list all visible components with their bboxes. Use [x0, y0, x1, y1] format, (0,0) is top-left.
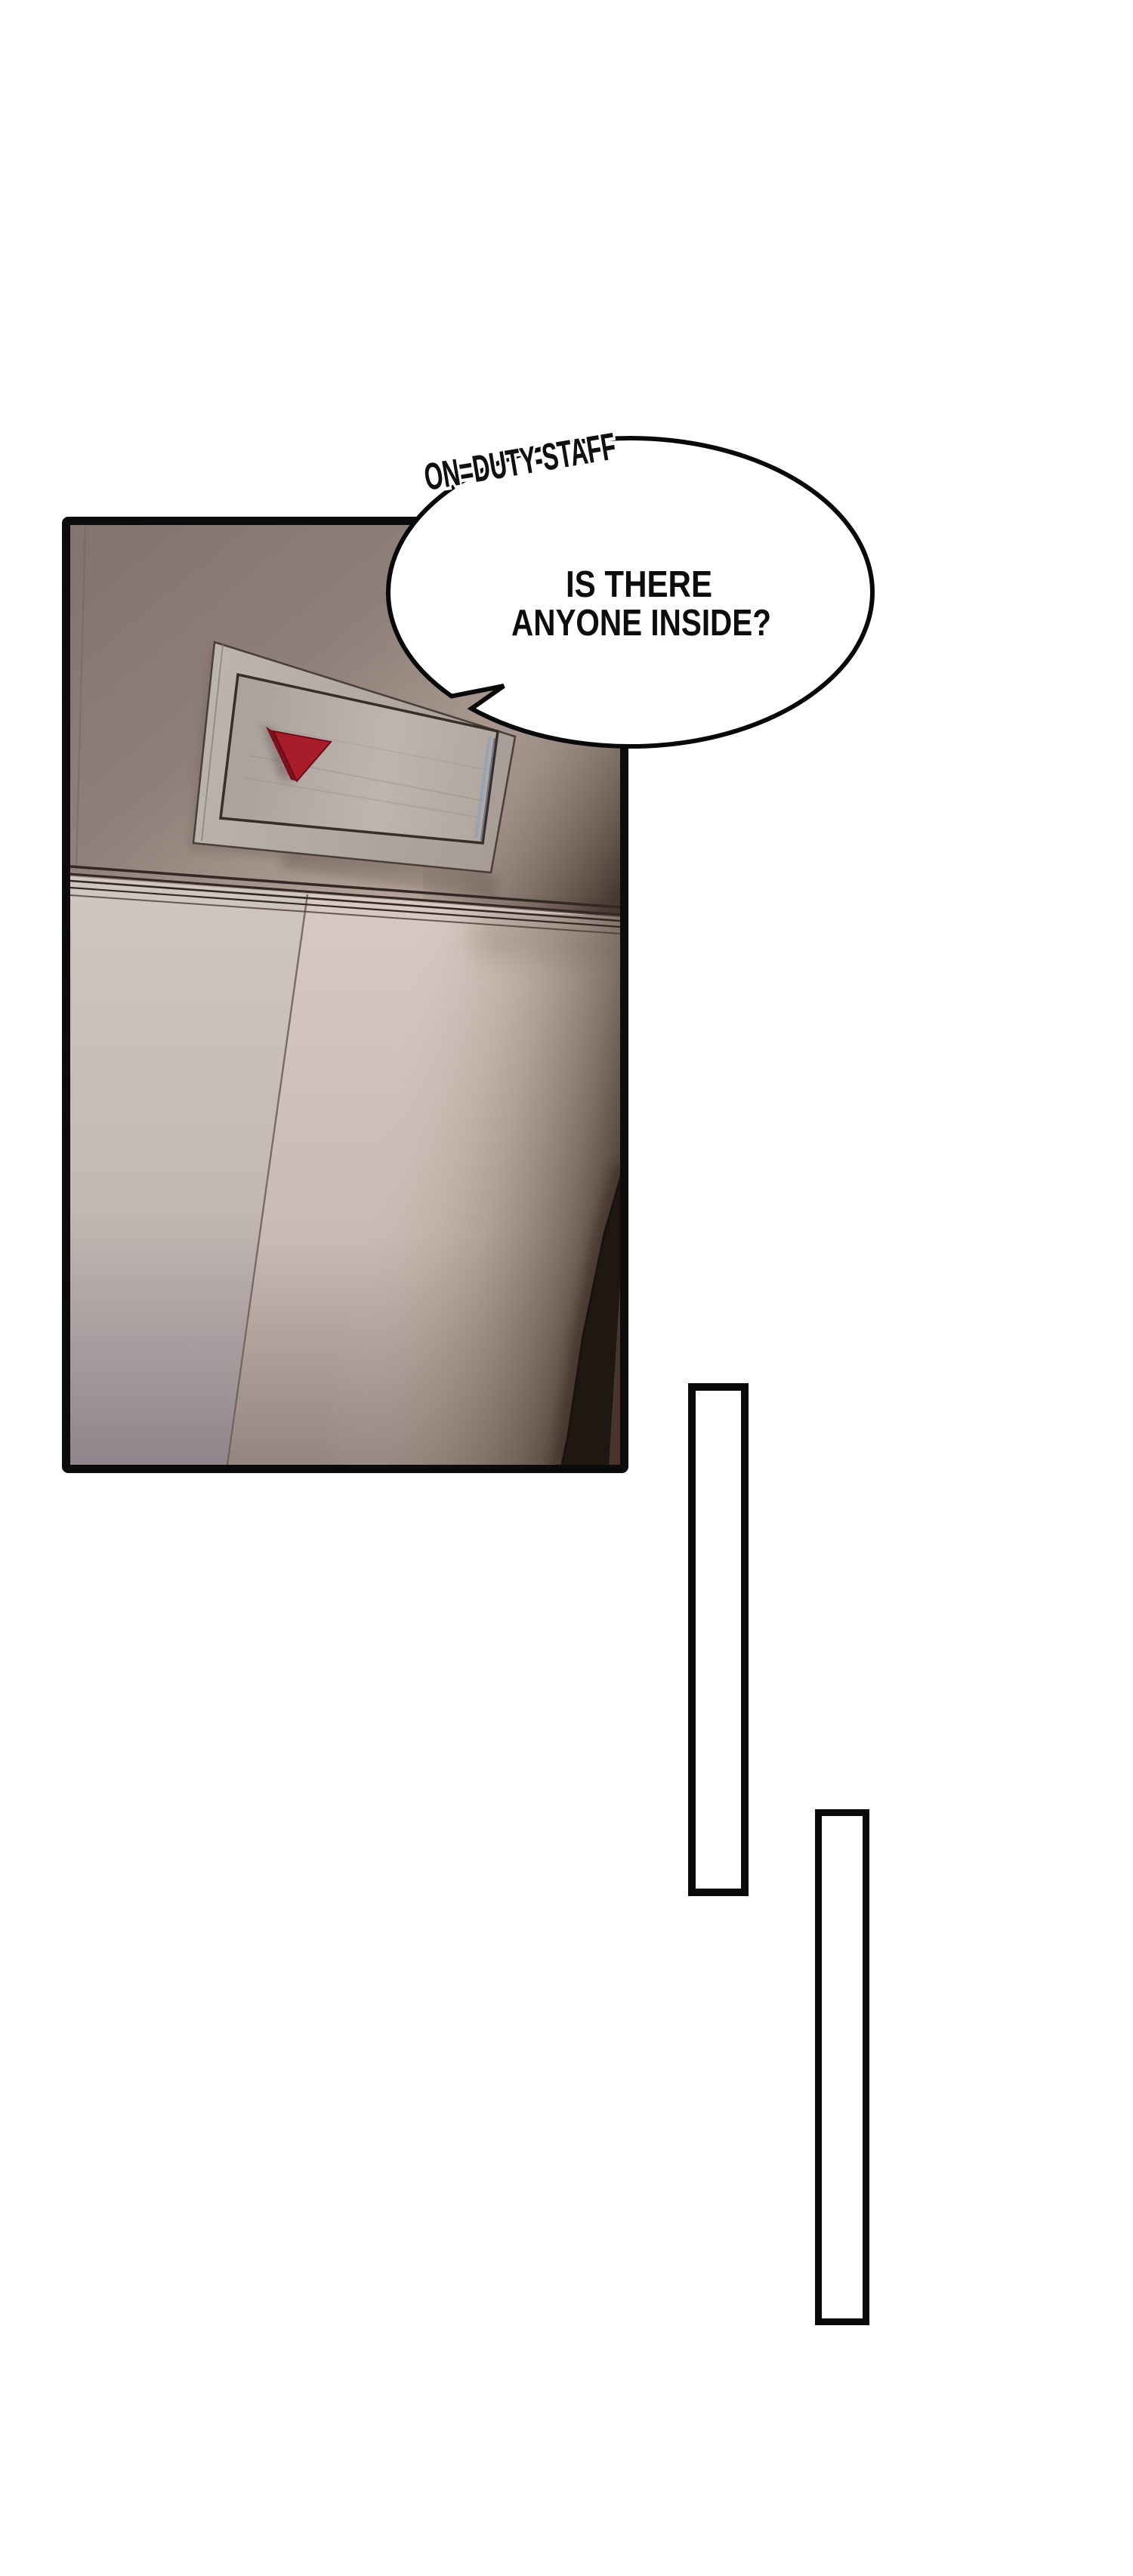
- svg-text:IS THERE: IS THERE: [566, 564, 712, 605]
- svg-text:ANYONE INSIDE?: ANYONE INSIDE?: [511, 603, 771, 644]
